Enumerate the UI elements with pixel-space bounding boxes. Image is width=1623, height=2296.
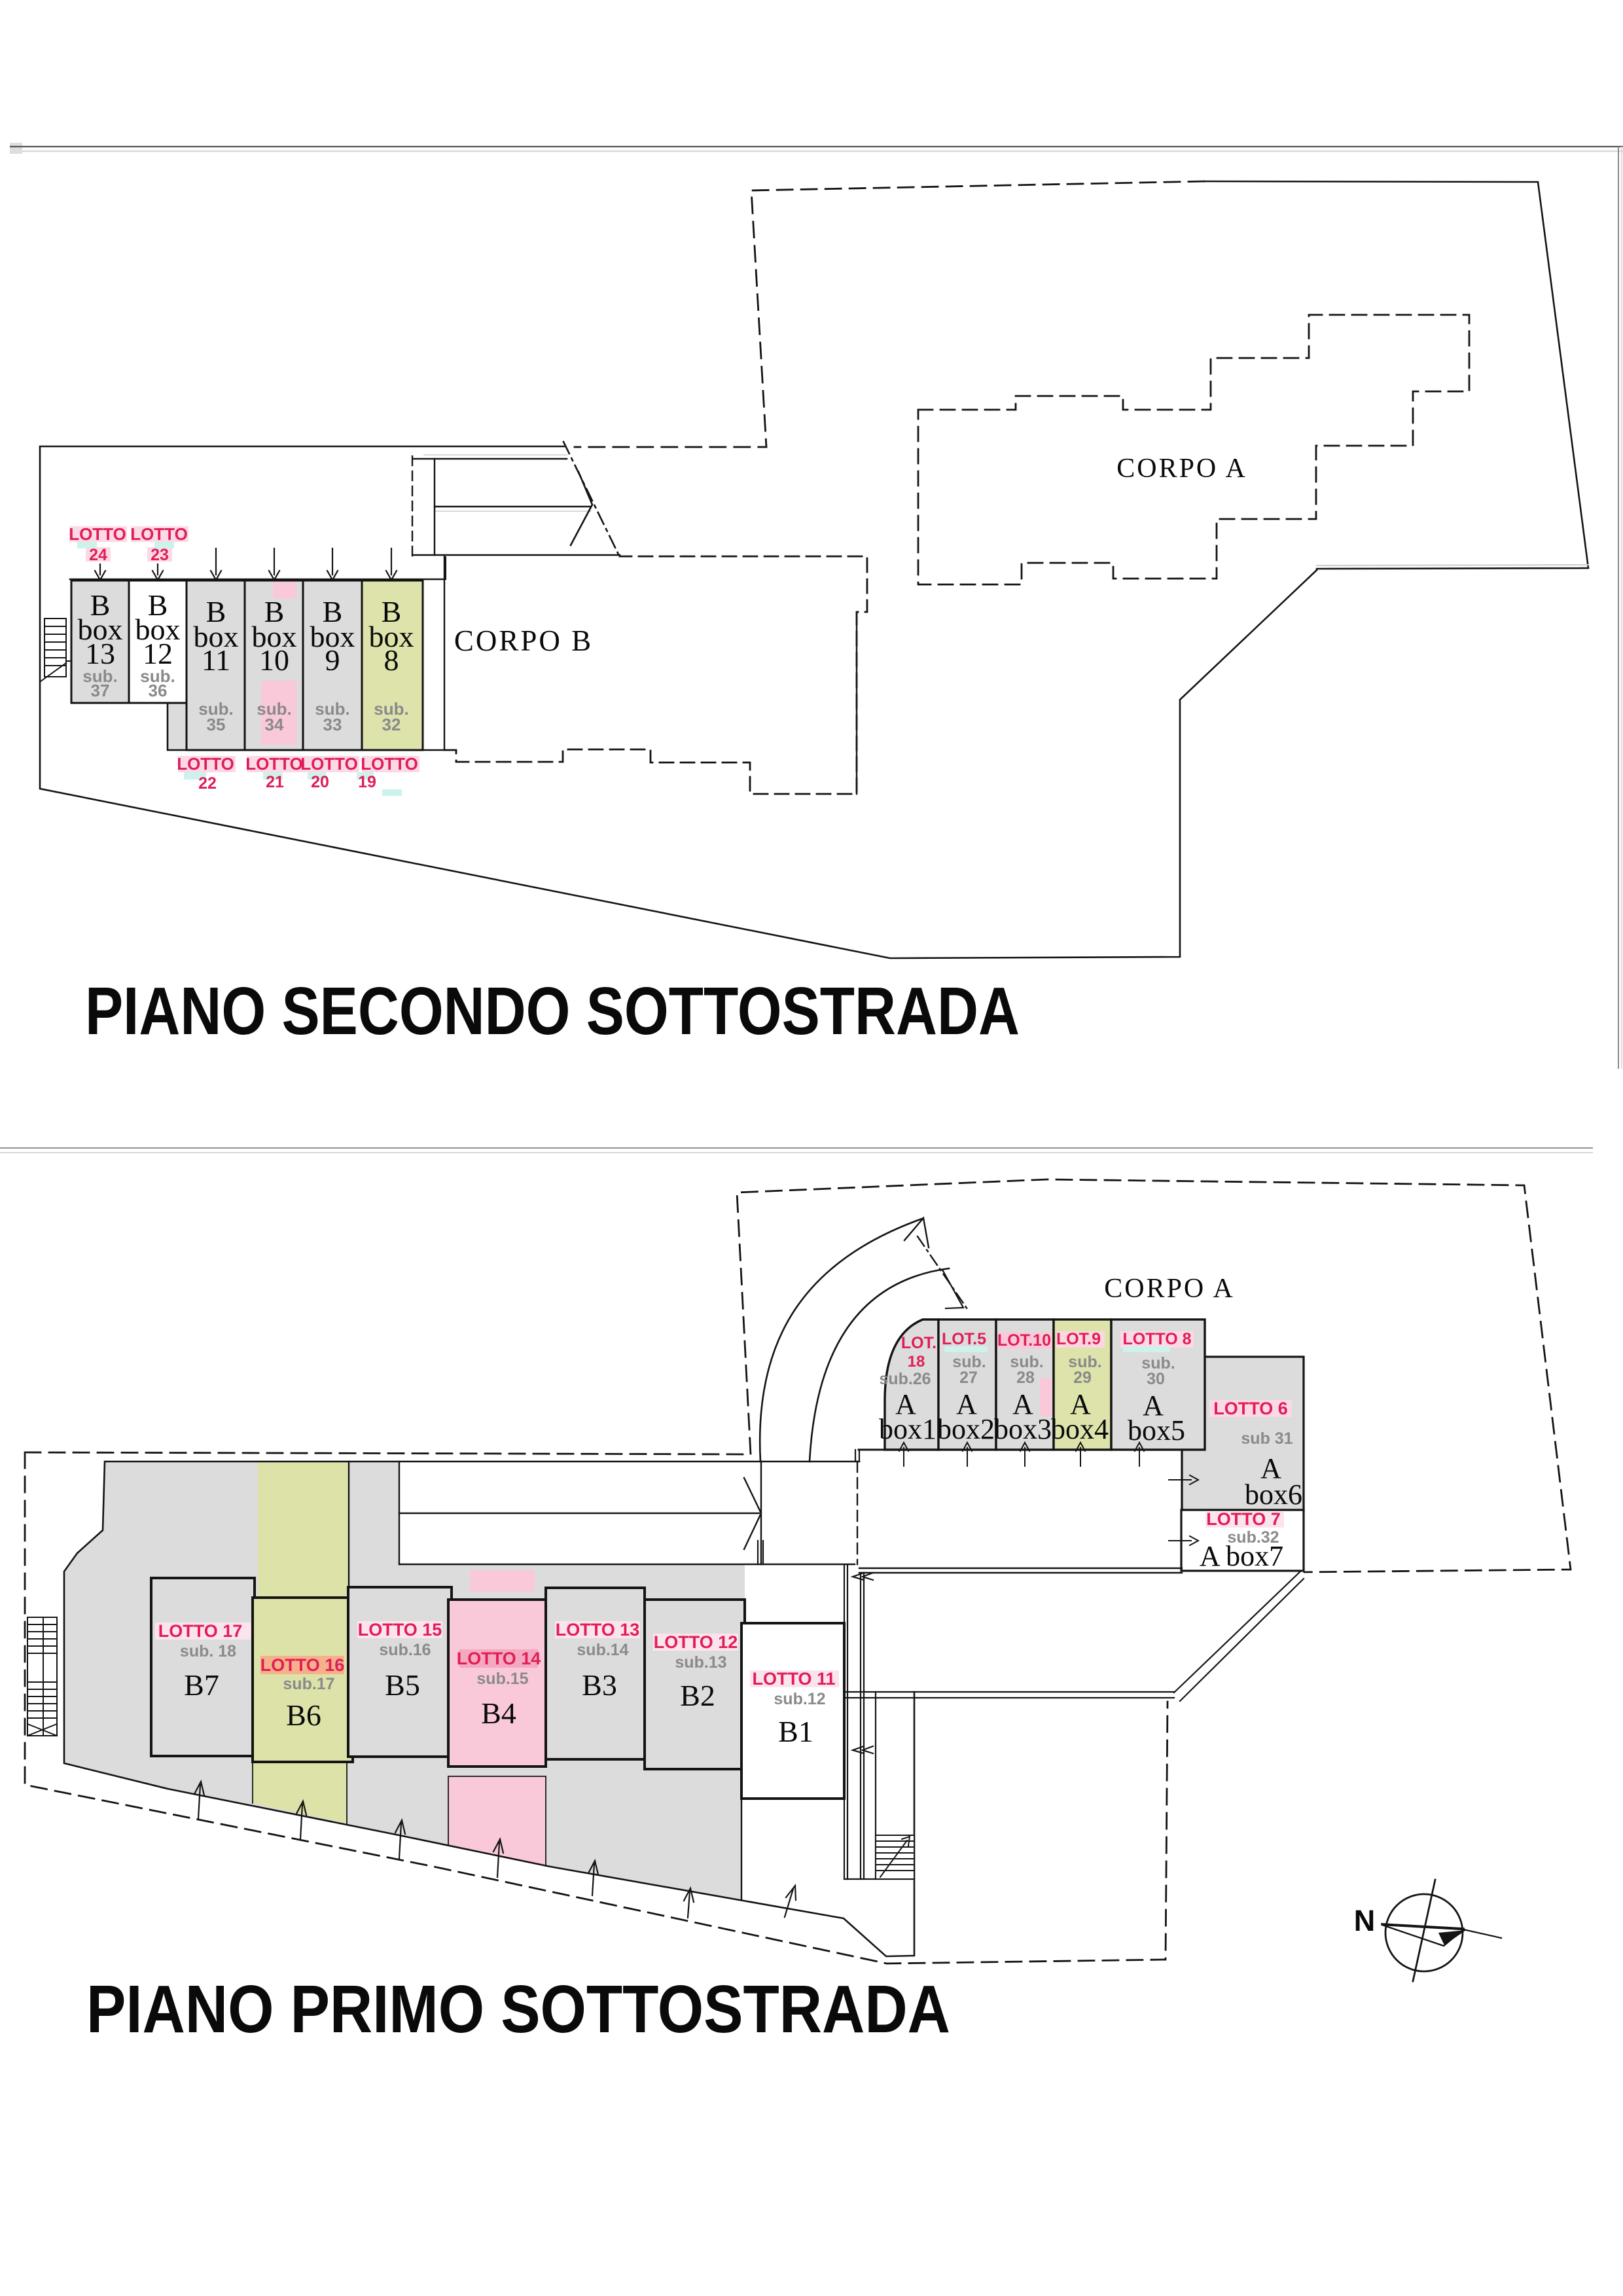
svg-text:34: 34 [265, 715, 284, 734]
svg-text:sub.12: sub.12 [774, 1690, 825, 1708]
svg-text:29: 29 [1073, 1369, 1092, 1387]
svg-text:24: 24 [89, 546, 107, 564]
svg-text:box5: box5 [1128, 1414, 1185, 1446]
svg-text:9: 9 [325, 643, 340, 677]
svg-text:32: 32 [382, 715, 401, 734]
svg-text:22: 22 [198, 774, 217, 793]
svg-text:box3: box3 [994, 1413, 1052, 1445]
svg-text:box2: box2 [937, 1413, 995, 1445]
svg-text:LOT.10: LOT.10 [997, 1331, 1051, 1350]
svg-text:LOTTO 15: LOTTO 15 [358, 1620, 442, 1640]
svg-text:LOTTO 16: LOTTO 16 [260, 1655, 345, 1675]
svg-text:B6: B6 [286, 1698, 321, 1732]
svg-text:sub.14: sub.14 [577, 1641, 628, 1659]
svg-text:B3: B3 [582, 1668, 617, 1702]
svg-text:PIANO SECONDO SOTTOSTRADA: PIANO SECONDO SOTTOSTRADA [85, 973, 1020, 1049]
svg-text:N: N [1354, 1904, 1376, 1937]
svg-text:LOTTO: LOTTO [130, 524, 188, 544]
svg-text:B7: B7 [184, 1668, 219, 1702]
svg-text:27: 27 [959, 1369, 978, 1387]
svg-text:CORPO B: CORPO B [454, 624, 593, 657]
svg-text:sub.15: sub.15 [476, 1670, 528, 1688]
svg-text:35: 35 [207, 715, 226, 734]
svg-text:LOTTO 14: LOTTO 14 [457, 1649, 541, 1668]
svg-text:LOTTO: LOTTO [300, 754, 358, 774]
svg-text:18: 18 [908, 1353, 925, 1371]
svg-text:LOTTO: LOTTO [69, 524, 126, 544]
svg-text:11: 11 [202, 643, 230, 677]
svg-text:sub 31: sub 31 [1241, 1429, 1293, 1448]
svg-text:box6: box6 [1245, 1479, 1302, 1511]
svg-text:CORPO A: CORPO A [1104, 1274, 1235, 1304]
svg-text:LOTTO 8: LOTTO 8 [1122, 1330, 1191, 1348]
svg-text:sub.13: sub.13 [675, 1653, 726, 1672]
svg-text:LOTTO 13: LOTTO 13 [556, 1620, 640, 1640]
svg-text:12: 12 [143, 637, 173, 670]
svg-text:sub.16: sub.16 [379, 1641, 431, 1659]
svg-text:30: 30 [1147, 1370, 1165, 1388]
svg-text:33: 33 [323, 715, 342, 734]
svg-text:sub.26: sub.26 [879, 1370, 931, 1388]
svg-text:LOTTO: LOTTO [245, 754, 303, 774]
svg-text:21: 21 [266, 773, 284, 791]
svg-text:36: 36 [149, 681, 168, 700]
svg-text:CORPO A: CORPO A [1116, 454, 1247, 484]
svg-text:B1: B1 [778, 1715, 813, 1748]
svg-text:LOT.9: LOT.9 [1056, 1330, 1101, 1348]
svg-text:LOT.5: LOT.5 [942, 1330, 986, 1348]
svg-text:8: 8 [384, 643, 399, 677]
svg-text:box4: box4 [1051, 1413, 1109, 1445]
svg-text:B4: B4 [481, 1696, 516, 1730]
svg-text:A box7: A box7 [1200, 1540, 1283, 1572]
svg-text:LOTTO: LOTTO [177, 754, 234, 774]
svg-text:box1: box1 [879, 1413, 936, 1445]
svg-text:LOTTO 7: LOTTO 7 [1206, 1509, 1281, 1529]
svg-text:13: 13 [85, 637, 115, 670]
svg-text:LOTTO 11: LOTTO 11 [752, 1669, 835, 1689]
svg-text:LOTTO 6: LOTTO 6 [1213, 1399, 1288, 1418]
svg-text:10: 10 [259, 643, 289, 677]
svg-text:28: 28 [1016, 1369, 1035, 1387]
svg-text:19: 19 [358, 773, 376, 791]
svg-text:PIANO PRIMO SOTTOSTRADA: PIANO PRIMO SOTTOSTRADA [86, 1971, 950, 2047]
svg-text:LOTTO 17: LOTTO 17 [158, 1621, 243, 1641]
svg-text:20: 20 [311, 773, 329, 791]
svg-text:B5: B5 [385, 1668, 420, 1702]
svg-text:LOT.: LOT. [901, 1334, 936, 1352]
svg-text:LOTTO 12: LOTTO 12 [654, 1632, 738, 1652]
svg-text:B2: B2 [680, 1679, 715, 1712]
svg-text:sub. 18: sub. 18 [180, 1642, 236, 1660]
svg-text:23: 23 [151, 546, 169, 564]
svg-text:37: 37 [91, 681, 110, 700]
svg-text:LOTTO: LOTTO [361, 754, 418, 774]
svg-text:sub.17: sub.17 [283, 1675, 334, 1693]
